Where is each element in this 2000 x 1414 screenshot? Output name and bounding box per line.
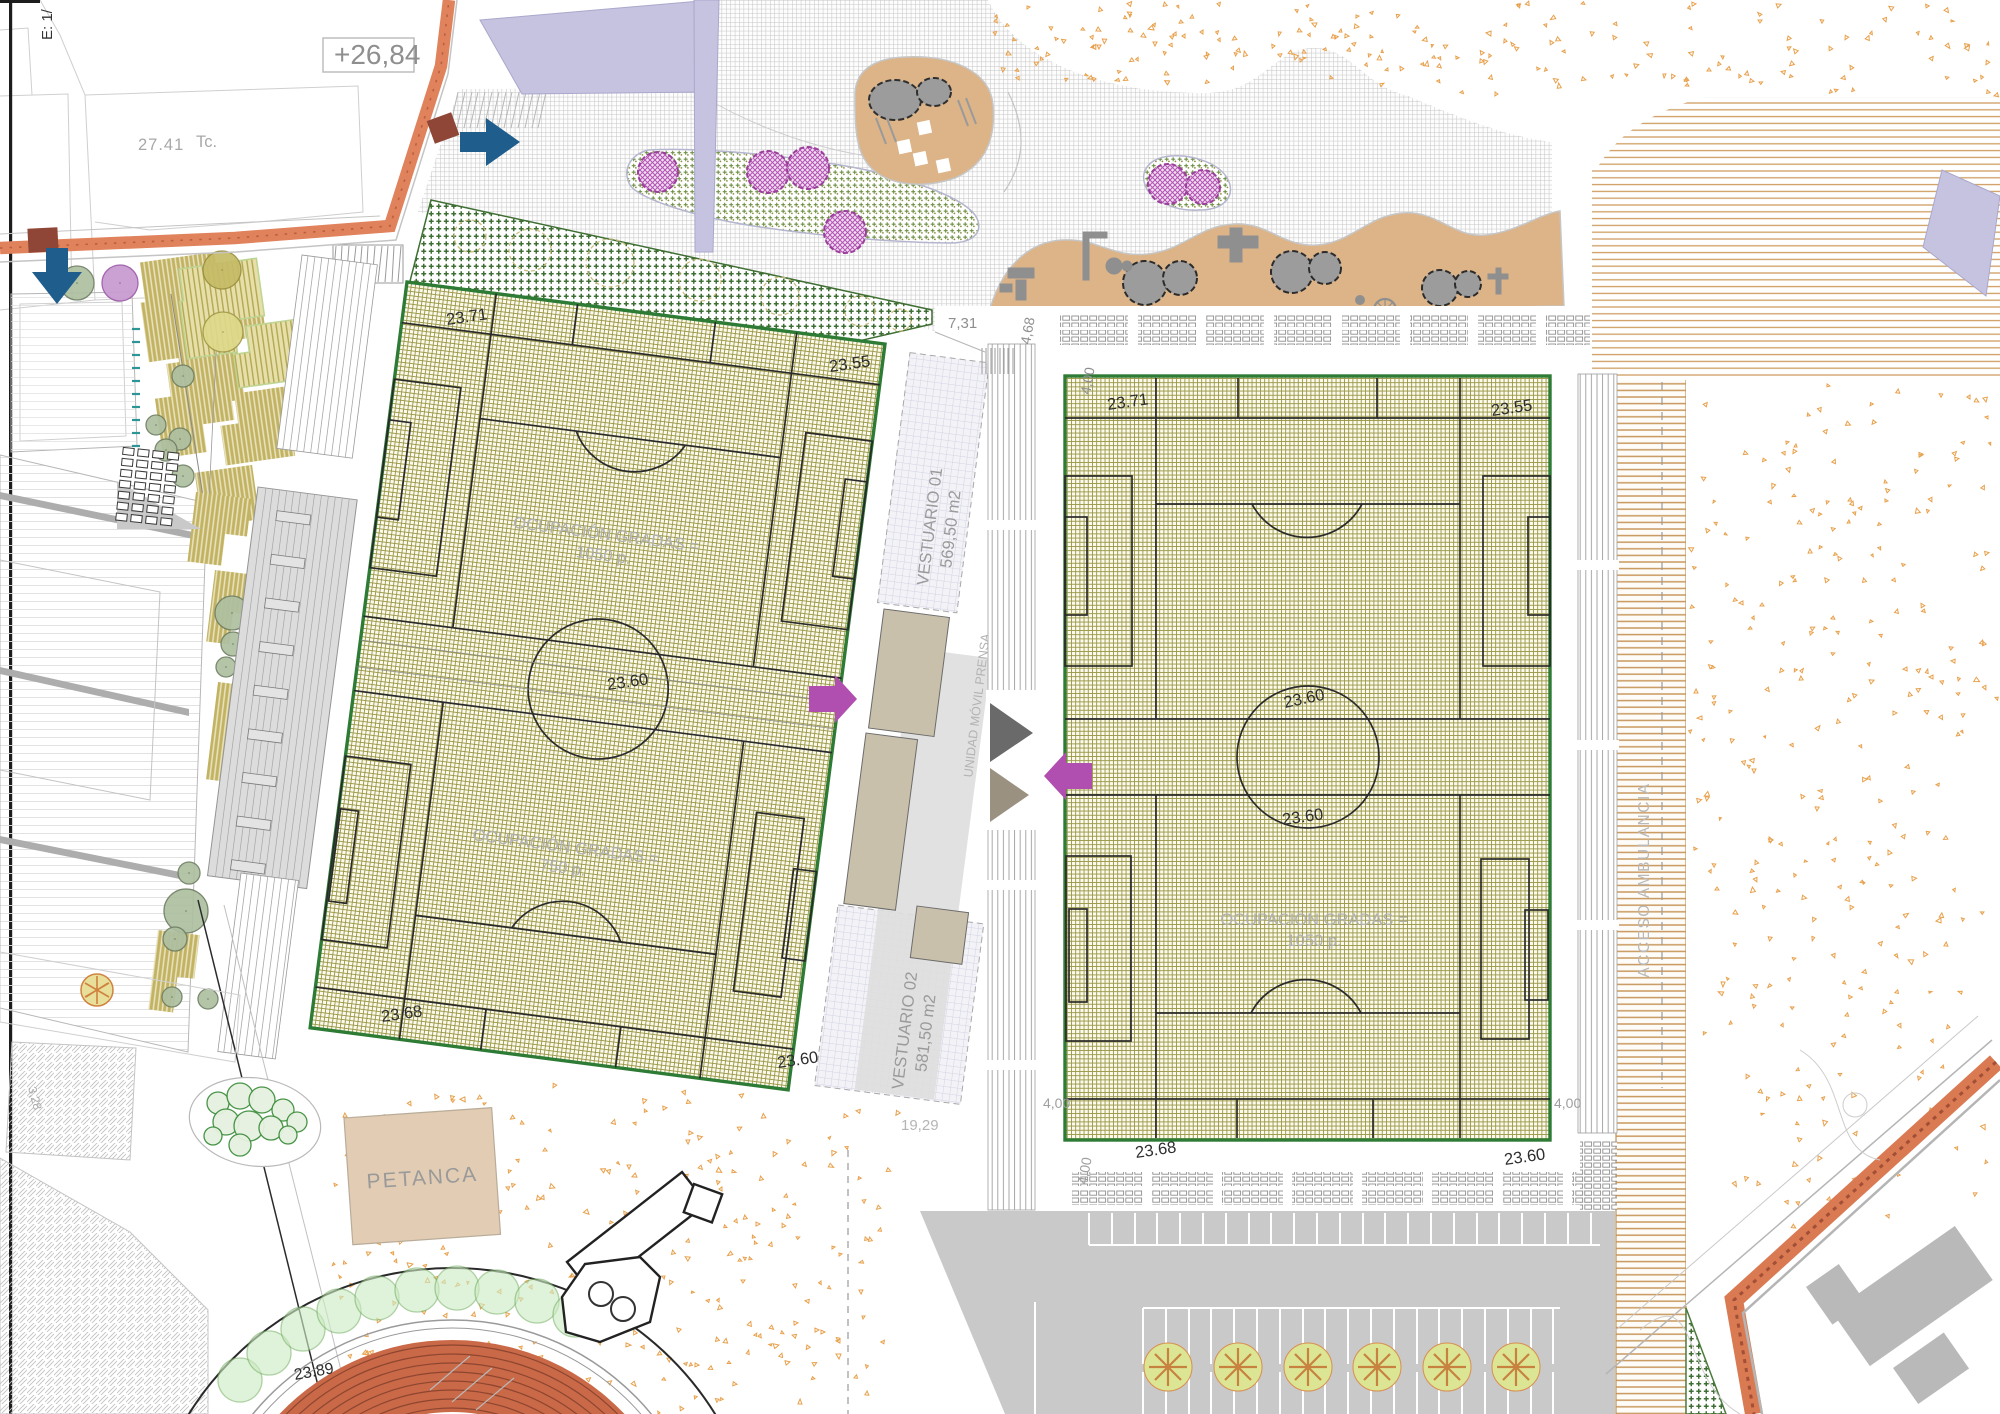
svg-text:1050 p.: 1050 p.	[1286, 932, 1341, 950]
svg-text:7,31: 7,31	[948, 315, 977, 332]
svg-text:4,00: 4,00	[1554, 1095, 1581, 1111]
svg-text:ACCESO AMBULANCIA: ACCESO AMBULANCIA	[1636, 782, 1653, 977]
svg-text:Tc.: Tc.	[196, 133, 217, 151]
svg-text:4,00: 4,00	[1043, 1095, 1070, 1111]
svg-text:OCUPACIÓN GRADAS =: OCUPACIÓN GRADAS =	[1220, 910, 1407, 929]
svg-text:19,29: 19,29	[901, 1117, 939, 1134]
svg-text:+26,84: +26,84	[334, 39, 420, 70]
svg-text:27.41: 27.41	[138, 136, 184, 154]
svg-text:E: 1/: E: 1/	[39, 8, 56, 40]
